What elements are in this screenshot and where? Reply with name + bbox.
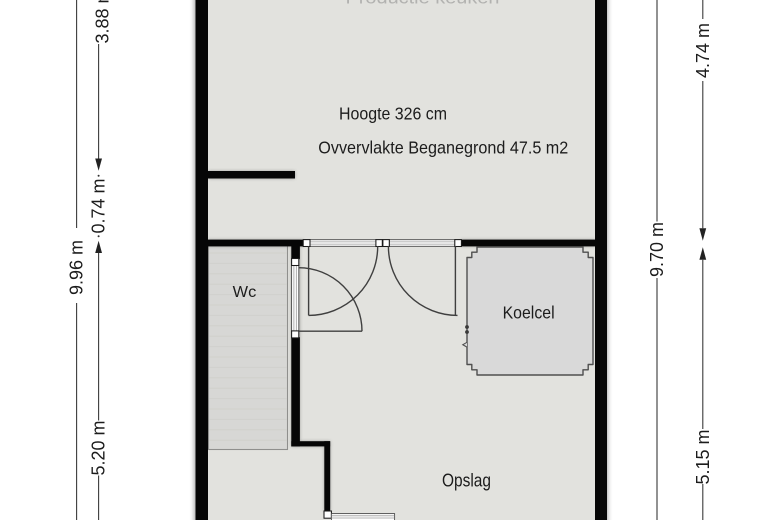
svg-text:5.20 m: 5.20 m [89, 420, 109, 475]
svg-text:Wc: Wc [233, 284, 257, 301]
svg-text:0.74 m: 0.74 m [89, 178, 109, 233]
svg-text:9.70 m: 9.70 m [647, 222, 667, 277]
svg-text:9.96 m: 9.96 m [67, 240, 87, 295]
svg-text:Hoogte 326 cm: Hoogte 326 cm [339, 104, 447, 124]
svg-text:Opslag: Opslag [442, 469, 491, 490]
svg-text:Ovvervlakte Beganegrond 47.5 m: Ovvervlakte Beganegrond 47.5 m2 [318, 137, 568, 157]
svg-text:5.15 m: 5.15 m [693, 429, 713, 484]
svg-text:4.74 m: 4.74 m [693, 23, 713, 78]
svg-text:Koelcel: Koelcel [503, 302, 555, 322]
svg-text:3.88 m: 3.88 m [92, 0, 112, 44]
svg-text:Productie keuken: Productie keuken [346, 0, 500, 8]
